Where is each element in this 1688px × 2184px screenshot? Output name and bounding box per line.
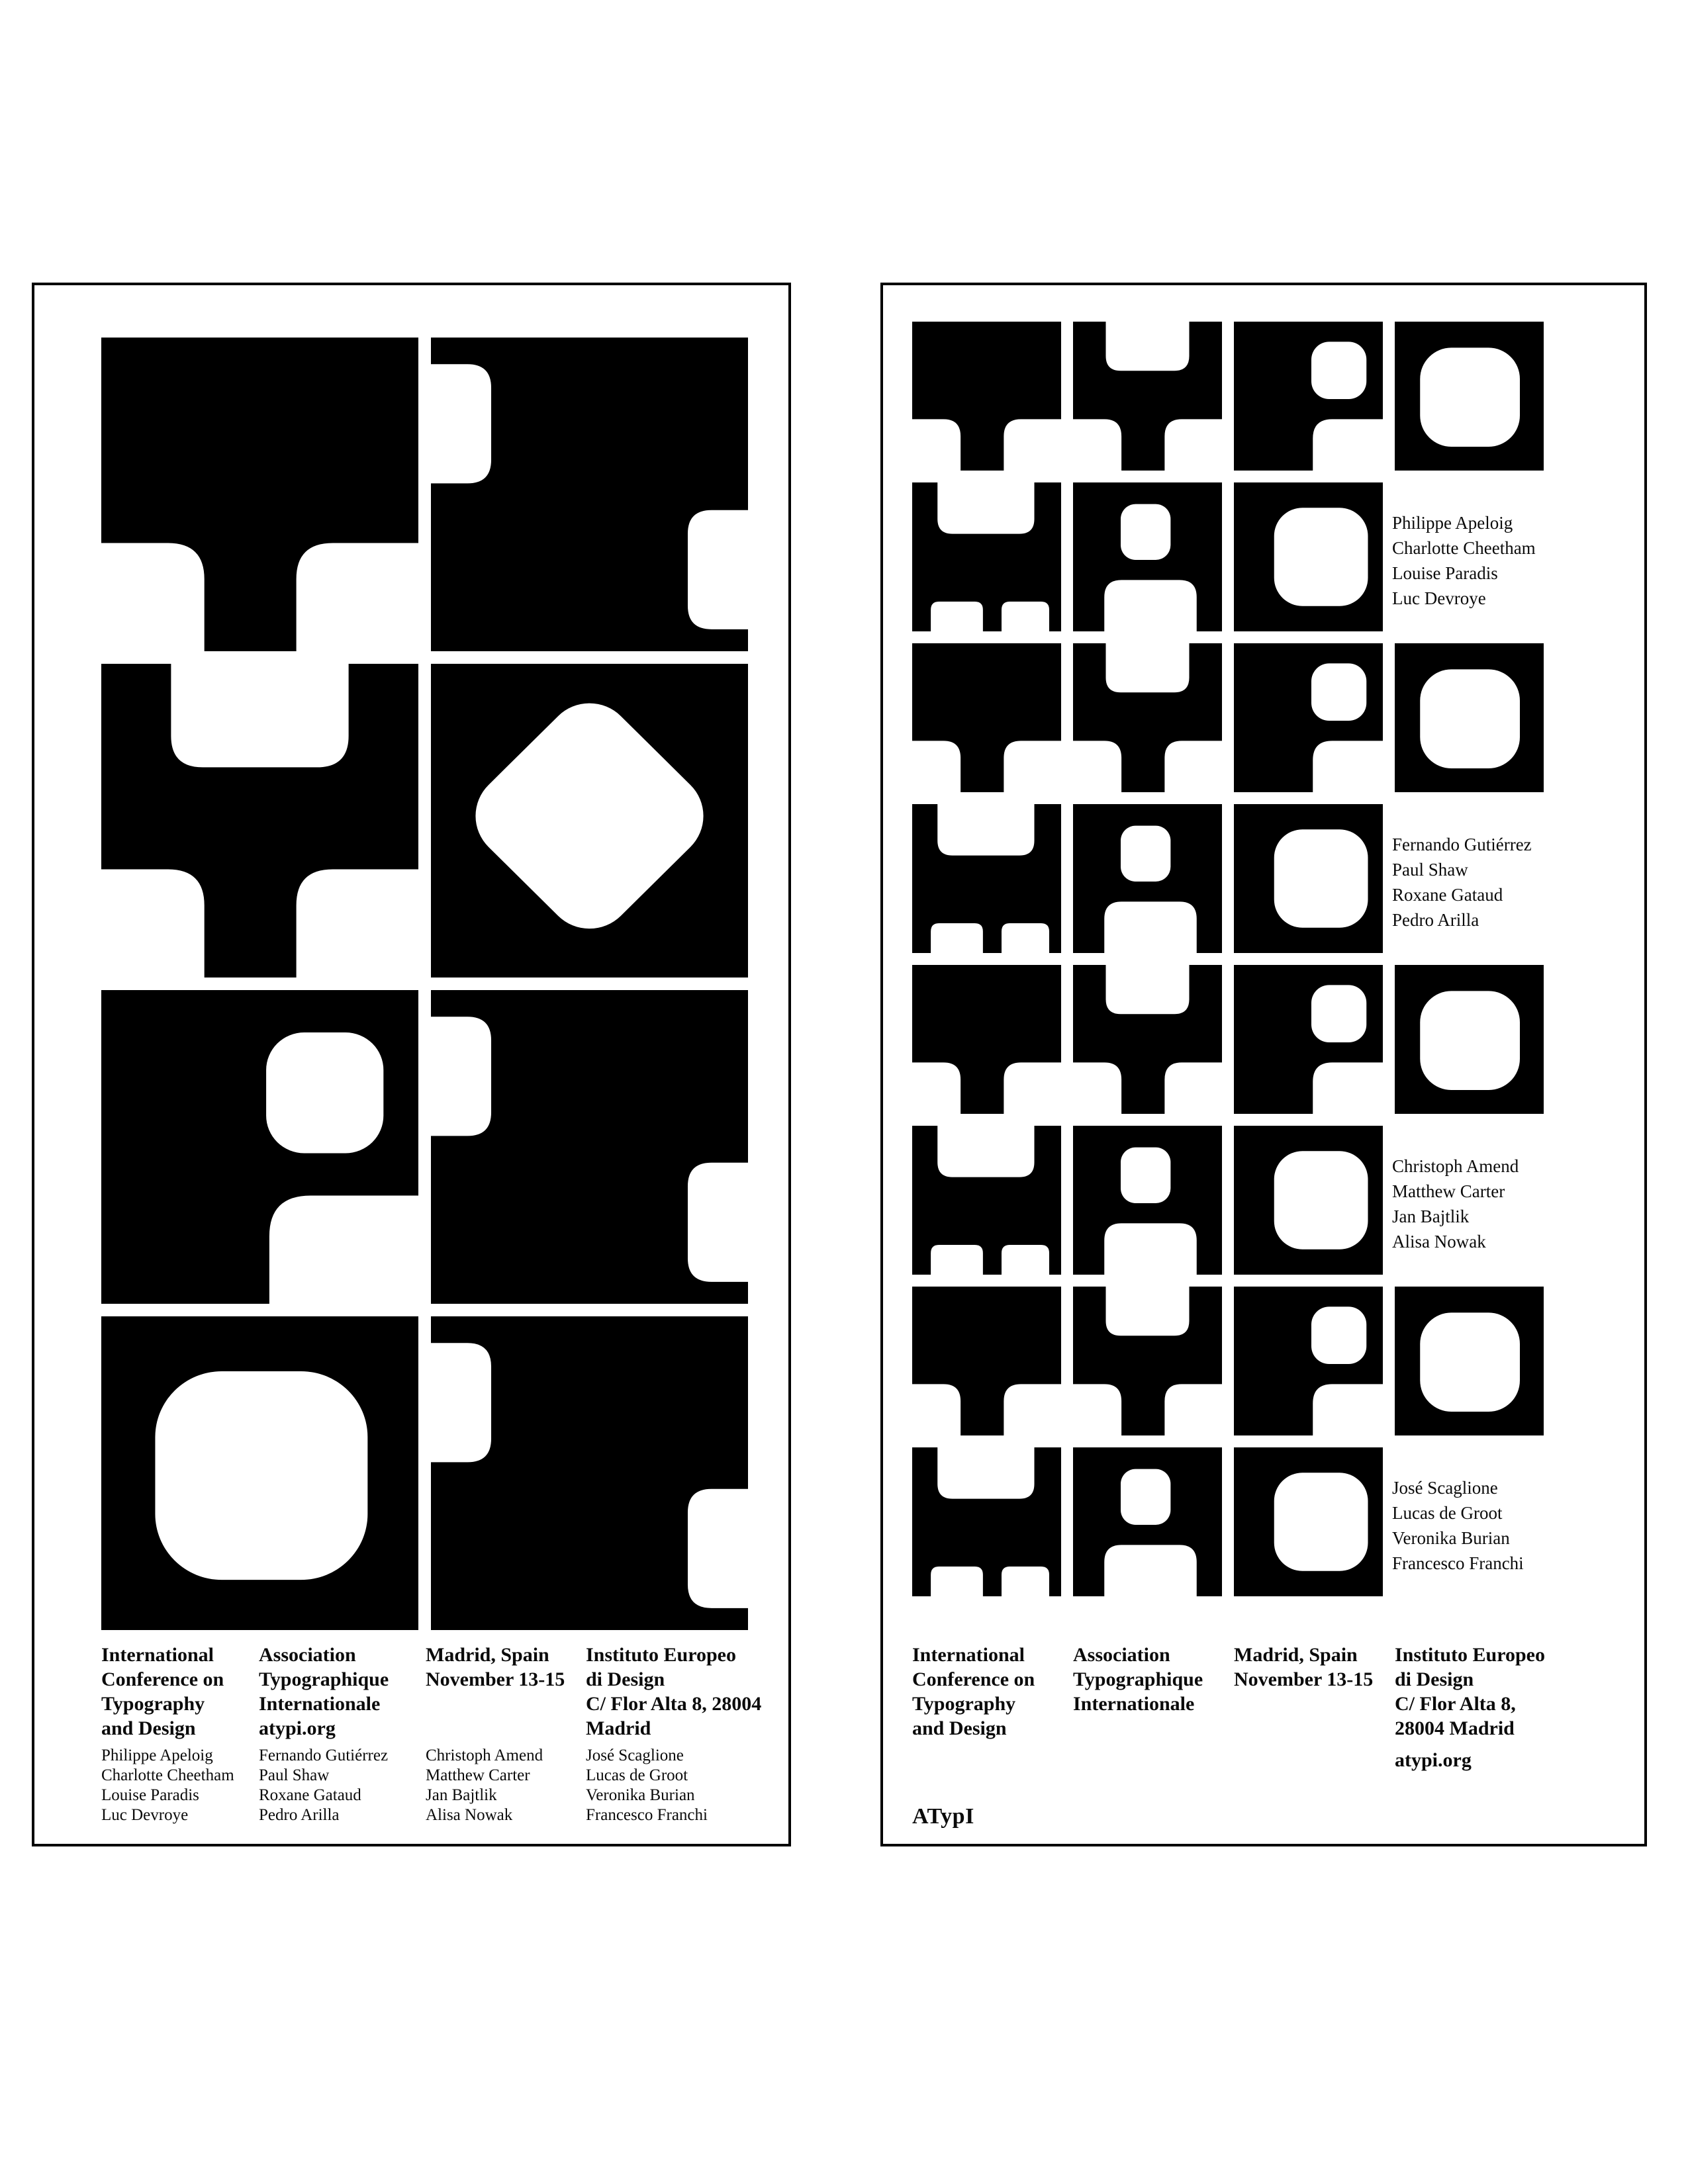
footer-heading-line: 28004 Madrid — [1395, 1719, 1515, 1739]
footer-heading-line: November 13-15 — [1234, 1670, 1373, 1690]
footer-heading-line: and Design — [912, 1719, 1007, 1739]
footer-heading-line: di Design — [1395, 1670, 1474, 1690]
footer-heading-line: Association — [1073, 1645, 1170, 1665]
atypi-url: atypi.org — [1395, 1751, 1472, 1770]
poster-right-footer: InternationalConference onTypographyand … — [0, 0, 1688, 2184]
footer-heading-line: Typography — [912, 1694, 1015, 1714]
footer-heading-line: Madrid, Spain — [1234, 1645, 1358, 1665]
atypi-logo: ATypI — [912, 1804, 974, 1829]
footer-heading-line: Internationale — [1073, 1694, 1194, 1714]
footer-heading-line: International — [912, 1645, 1025, 1665]
footer-heading-line: Typographique — [1073, 1670, 1203, 1690]
footer-heading-line: Instituto Europeo — [1395, 1645, 1545, 1665]
scanned-page: InternationalConference onTypographyand … — [0, 0, 1688, 2184]
footer-heading-line: Conference on — [912, 1670, 1035, 1690]
footer-heading-line: C/ Flor Alta 8, — [1395, 1694, 1516, 1714]
